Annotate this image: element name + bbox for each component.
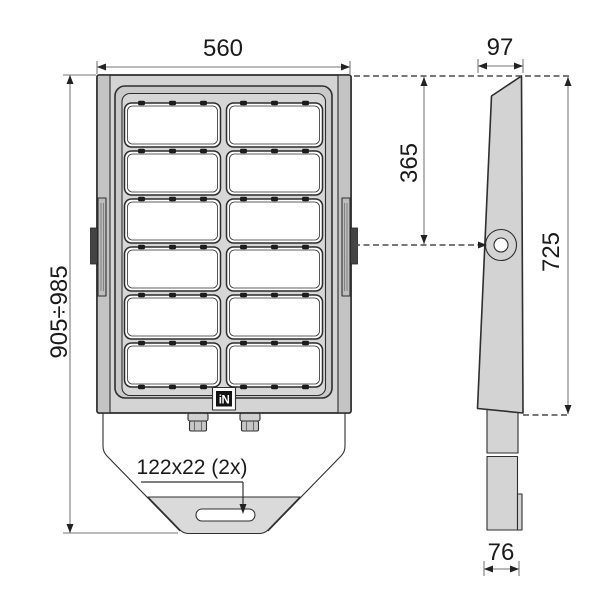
module-clip <box>240 197 247 202</box>
dimension-365-label: 365 <box>396 143 423 183</box>
side-arm-lower <box>487 457 518 531</box>
module-clip <box>169 101 176 106</box>
brand-logo-badge: iN <box>213 388 236 411</box>
hinge-left <box>91 198 107 296</box>
module-clip <box>240 149 247 154</box>
luminaire-technical-drawing: iN 560 <box>0 0 600 600</box>
module-clip <box>169 341 176 346</box>
module-clip <box>271 149 278 154</box>
led-module <box>125 103 221 147</box>
module-clip <box>200 101 207 106</box>
led-module <box>227 247 323 291</box>
led-module <box>125 199 221 243</box>
module-clip <box>302 149 309 154</box>
module-clip <box>169 149 176 154</box>
led-module <box>227 151 323 195</box>
module-clip <box>169 197 176 202</box>
pivot-inner-circle <box>494 238 508 252</box>
led-module <box>125 247 221 291</box>
module-clip <box>302 197 309 202</box>
module-clip <box>302 341 309 346</box>
module-clip <box>169 385 176 390</box>
led-module <box>227 343 323 387</box>
side-arm-hook <box>518 494 523 530</box>
module-clip <box>200 341 207 346</box>
module-clip <box>240 385 247 390</box>
module-clip <box>240 293 247 298</box>
module-clip <box>138 101 145 106</box>
side-view <box>478 76 524 530</box>
module-clip <box>240 341 247 346</box>
module-clip <box>240 101 247 106</box>
module-clip <box>271 341 278 346</box>
module-clip <box>200 293 207 298</box>
slot-callout-label: 122x22 (2x) <box>137 456 248 479</box>
module-clip <box>200 245 207 250</box>
dimension-97-label: 97 <box>487 34 514 61</box>
cable-gland-left <box>188 413 208 431</box>
logo-text: iN <box>219 395 230 407</box>
module-clip <box>138 149 145 154</box>
module-clip <box>200 385 207 390</box>
drawing-canvas: iN 560 <box>0 0 600 600</box>
led-module <box>125 343 221 387</box>
dimension-905-985-label: 905÷985 <box>46 265 73 358</box>
module-clip <box>240 245 247 250</box>
led-module <box>125 151 221 195</box>
module-clip <box>169 245 176 250</box>
hinge-right <box>342 198 358 296</box>
module-clip <box>302 385 309 390</box>
module-clip <box>138 385 145 390</box>
cable-gland-right <box>240 413 260 431</box>
dimension-365: 365 <box>396 77 428 244</box>
module-clip <box>271 385 278 390</box>
dimension-725-label: 725 <box>538 232 565 272</box>
dimension-560-label: 560 <box>203 35 243 62</box>
module-clip <box>200 197 207 202</box>
led-module <box>227 199 323 243</box>
module-clip <box>302 293 309 298</box>
module-clip <box>271 245 278 250</box>
module-clip <box>138 245 145 250</box>
module-clip <box>271 197 278 202</box>
module-clip <box>271 293 278 298</box>
module-clip <box>169 293 176 298</box>
module-clip <box>271 101 278 106</box>
module-clip <box>302 245 309 250</box>
hinge-right-tab <box>351 228 358 264</box>
led-module <box>125 295 221 339</box>
dimension-725: 725 <box>538 77 572 414</box>
led-module <box>227 295 323 339</box>
hinge-left-tab <box>91 228 98 264</box>
module-clip <box>200 149 207 154</box>
module-clip <box>138 197 145 202</box>
module-clip <box>302 101 309 106</box>
module-clip <box>138 341 145 346</box>
module-clip <box>138 293 145 298</box>
led-module <box>227 103 323 147</box>
dimension-560: 560 <box>97 35 350 74</box>
dimension-76: 76 <box>484 539 519 576</box>
mounting-slot <box>196 509 255 521</box>
dimension-76-label: 76 <box>488 539 515 566</box>
side-arm-upper <box>487 406 518 453</box>
dimension-97: 97 <box>478 34 523 73</box>
